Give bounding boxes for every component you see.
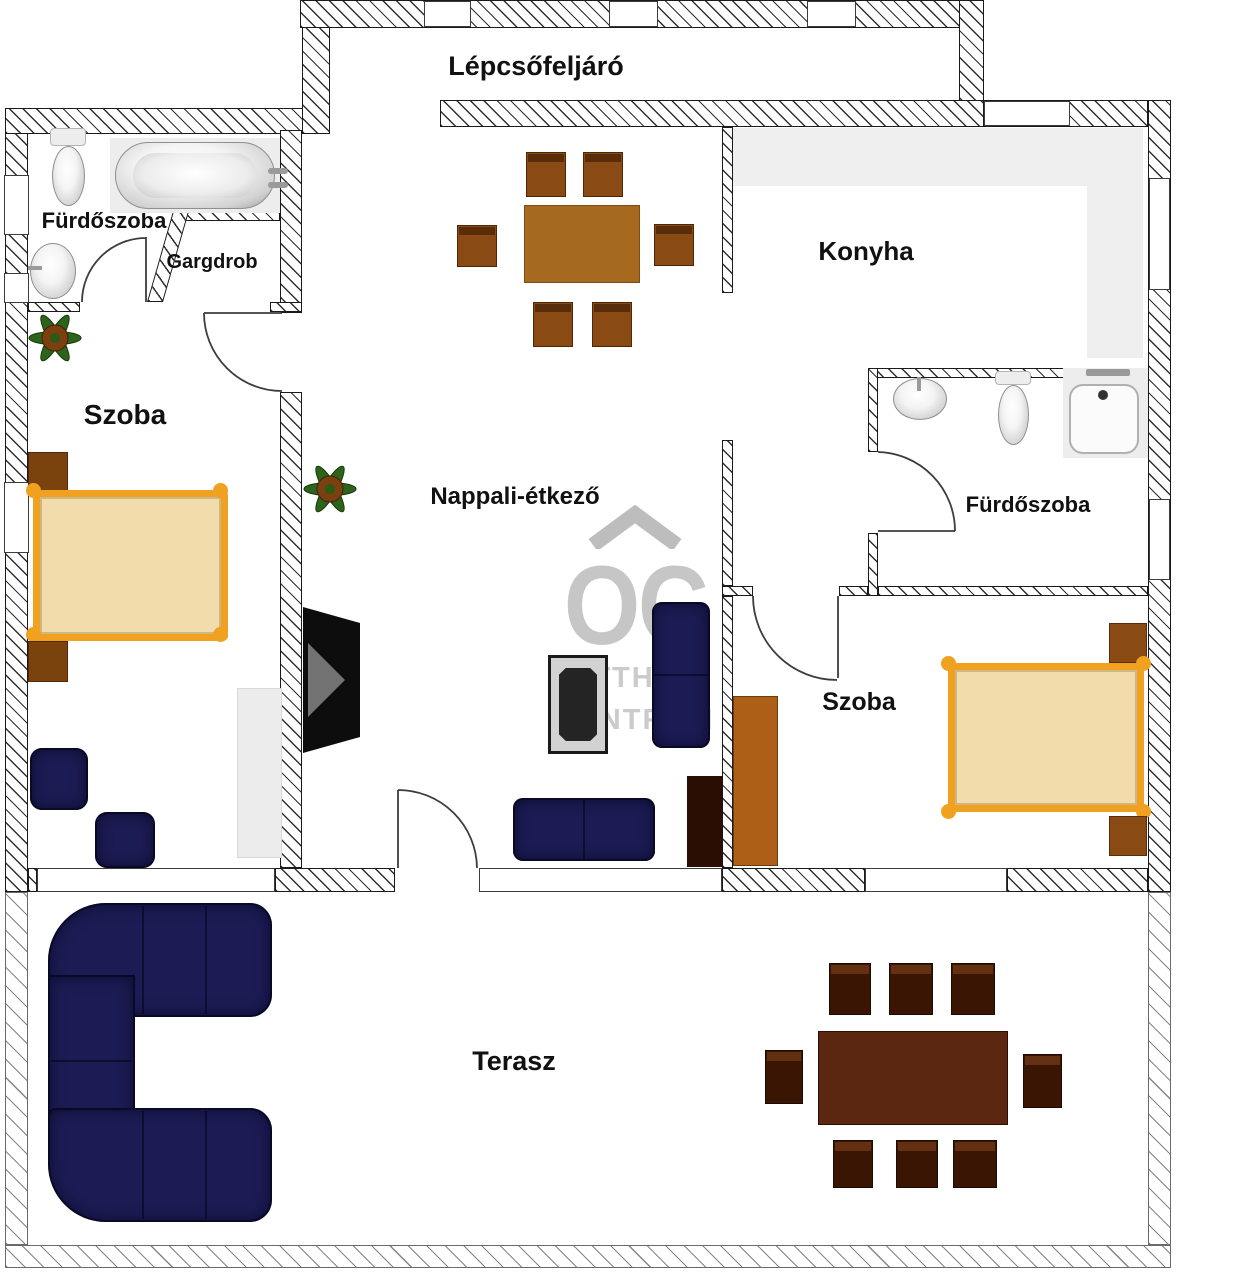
wall-bedroom1-right-upper xyxy=(280,130,302,313)
wall-bottom-b xyxy=(275,868,395,892)
door-bathroom1 xyxy=(82,237,146,302)
bathtub-faucet xyxy=(268,168,288,174)
door-bedroom2 xyxy=(753,596,838,680)
label-bedroom1: Szoba xyxy=(73,399,177,431)
bed-corner-dot xyxy=(213,483,228,498)
wall-bathroom1-bottom xyxy=(28,302,80,312)
sofa-seam xyxy=(142,1111,144,1219)
corner-sofa-bottom-arm xyxy=(48,1108,272,1222)
nightstand xyxy=(1109,816,1147,856)
dining-chair xyxy=(592,302,632,347)
bed-corner-dot xyxy=(941,804,956,819)
window-living-terrace xyxy=(479,868,722,892)
plant-icon xyxy=(29,312,81,364)
coffee-table-top xyxy=(559,668,597,741)
door-bedroom1 xyxy=(204,313,282,391)
bathtub-inner xyxy=(133,153,257,198)
bed-bedroom1 xyxy=(33,490,228,641)
bed-corner-dot xyxy=(1136,656,1151,671)
window-left-1 xyxy=(4,175,29,235)
dining-chair xyxy=(526,152,566,197)
bed-corner-dot xyxy=(941,656,956,671)
sofa-seam xyxy=(654,674,708,676)
sink2-faucet xyxy=(917,377,921,391)
wall-gardrob-top xyxy=(177,212,280,221)
label-terrace: Terasz xyxy=(458,1046,570,1077)
armchair xyxy=(95,812,155,868)
dining-chair xyxy=(457,225,497,267)
terrace-chair xyxy=(896,1140,938,1188)
dining-table xyxy=(524,205,640,283)
wall-terrace-bottom xyxy=(5,1245,1171,1268)
label-bathroom2: Fürdőszoba xyxy=(953,492,1103,518)
window-left-3 xyxy=(4,482,29,553)
shower-drain xyxy=(1098,390,1108,400)
terrace-chair xyxy=(829,963,871,1015)
wall-bedroom2-top-b xyxy=(839,586,868,596)
terrace-chair xyxy=(1023,1054,1062,1108)
wall-bathroom2-left-a xyxy=(868,368,878,452)
terrace-chair xyxy=(953,1140,997,1188)
sofa-seam xyxy=(51,1060,132,1062)
wall-bedroom1-right-lower xyxy=(280,392,302,868)
sink-faucet xyxy=(28,266,42,270)
wall-terrace-right xyxy=(1148,892,1171,1245)
kitchen-counter-top xyxy=(733,128,1143,186)
bed-corner-dot xyxy=(213,627,228,642)
wall-living-top xyxy=(440,100,984,127)
wardrobe xyxy=(733,696,778,866)
bathtub-faucet-2 xyxy=(268,182,288,188)
sofa-seam xyxy=(205,1111,207,1219)
armchair xyxy=(30,748,88,810)
kitchen-counter-right xyxy=(1087,186,1143,358)
toilet-icon xyxy=(52,146,85,206)
window-stair-2 xyxy=(609,1,658,27)
window-bedroom1-terrace xyxy=(37,868,275,892)
wall-bottom-a xyxy=(28,868,37,892)
tv-icon xyxy=(303,607,360,753)
coffee-table xyxy=(548,655,608,754)
sofa-seam xyxy=(583,800,585,859)
bed-bedroom2 xyxy=(948,663,1144,812)
window-right-2 xyxy=(1149,499,1170,580)
shower-faucet xyxy=(1086,369,1130,376)
window-left-2 xyxy=(4,273,29,303)
window-bedroom2-terrace xyxy=(865,868,1007,892)
terrace-table xyxy=(818,1031,1008,1125)
dining-chair xyxy=(533,302,573,347)
dining-chair xyxy=(654,224,694,266)
dining-chair xyxy=(583,152,623,197)
toilet-tank xyxy=(50,128,86,146)
door-bathroom2 xyxy=(878,452,955,531)
sink-icon xyxy=(30,243,76,299)
wall-bottom-d xyxy=(1007,868,1148,892)
window-right-1 xyxy=(1149,178,1170,290)
wall-bathroom2-left-b xyxy=(868,533,878,596)
label-bedroom2: Szoba xyxy=(810,688,908,717)
toilet2-icon xyxy=(998,385,1029,445)
wall-gardrob-bottom xyxy=(270,302,302,312)
terrace-chair xyxy=(765,1050,803,1104)
sofa-seam xyxy=(205,906,207,1014)
terrace-chair xyxy=(833,1140,873,1188)
terrace-chair xyxy=(889,963,933,1015)
label-gardrob: Gargdrob xyxy=(162,251,262,274)
terrace-chair xyxy=(951,963,995,1015)
window-stair-1 xyxy=(424,1,471,27)
closet xyxy=(237,688,282,858)
toilet2-tank xyxy=(995,371,1031,385)
bed-corner-dot xyxy=(26,627,41,642)
plant-icon xyxy=(304,463,356,515)
window-kitchen-top xyxy=(984,101,1070,126)
label-kitchen: Konyha xyxy=(802,236,930,267)
wall-bottom-c xyxy=(722,868,865,892)
cabinet xyxy=(687,776,723,867)
bed-corner-dot xyxy=(26,483,41,498)
sofa-seam xyxy=(142,906,144,1014)
wall-terrace-left xyxy=(5,892,28,1245)
floor-plan: OC OTTHON CENTRUM xyxy=(0,0,1259,1280)
wall-kitchen-partition xyxy=(722,127,733,293)
wall-bathroom2-bottom xyxy=(878,586,1148,596)
label-staircase: Lépcsőfeljáró xyxy=(430,51,642,82)
door-living-terrace xyxy=(398,790,477,868)
nightstand xyxy=(28,641,68,682)
window-stair-3 xyxy=(807,1,856,27)
